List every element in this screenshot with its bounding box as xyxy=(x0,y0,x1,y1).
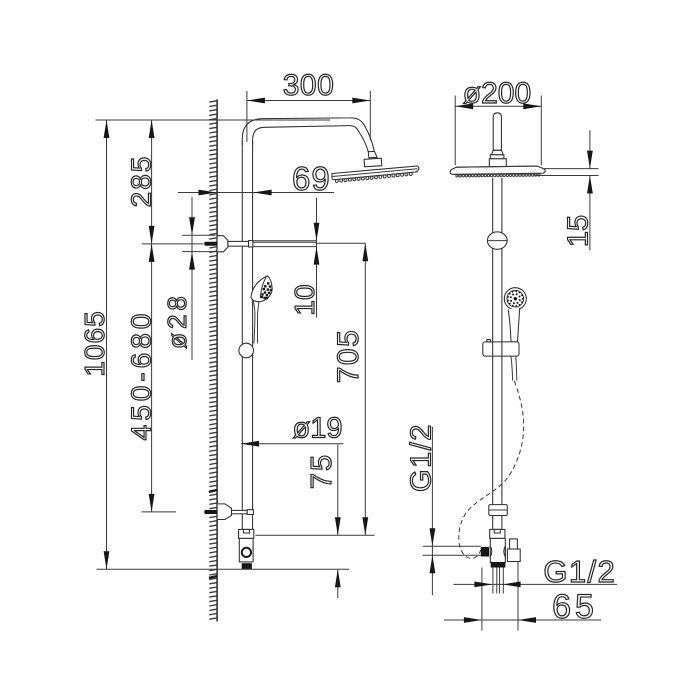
svg-text:G1/2: G1/2 xyxy=(406,423,438,492)
svg-text:65: 65 xyxy=(552,588,598,626)
svg-text:15: 15 xyxy=(563,215,595,247)
svg-text:ø200: ø200 xyxy=(463,77,531,110)
svg-text:450-680: 450-680 xyxy=(126,310,157,441)
svg-text:69: 69 xyxy=(292,160,331,197)
svg-text:75: 75 xyxy=(306,453,338,489)
svg-text:10: 10 xyxy=(289,284,320,315)
svg-text:285: 285 xyxy=(126,155,157,208)
svg-text:ø28: ø28 xyxy=(162,292,192,349)
svg-text:1065: 1065 xyxy=(79,310,110,376)
svg-text:705: 705 xyxy=(332,329,365,384)
svg-text:ø19: ø19 xyxy=(293,413,343,445)
svg-text:300: 300 xyxy=(283,69,335,102)
svg-text:G1/2: G1/2 xyxy=(543,554,616,589)
